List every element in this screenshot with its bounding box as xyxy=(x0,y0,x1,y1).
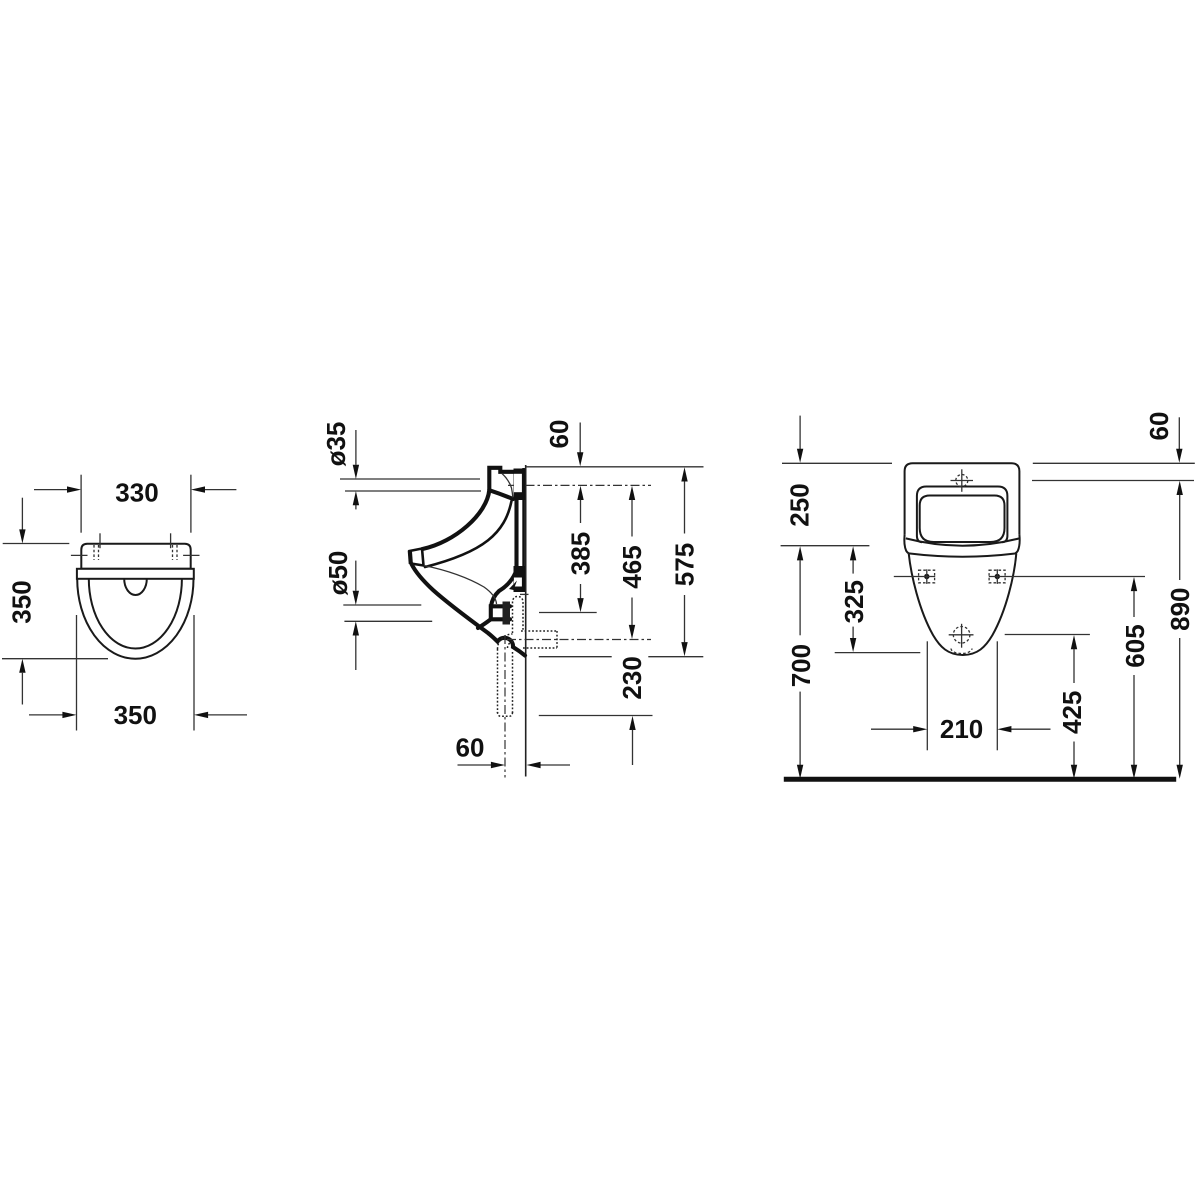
svg-text:230: 230 xyxy=(617,656,647,699)
svg-text:575: 575 xyxy=(670,543,700,586)
svg-text:ø50: ø50 xyxy=(323,551,353,596)
svg-text:60: 60 xyxy=(1144,412,1174,441)
svg-text:605: 605 xyxy=(1120,624,1150,667)
svg-text:325: 325 xyxy=(839,580,869,623)
svg-text:ø35: ø35 xyxy=(321,422,351,467)
svg-text:425: 425 xyxy=(1057,691,1087,734)
svg-text:60: 60 xyxy=(456,733,485,763)
svg-text:465: 465 xyxy=(617,545,647,588)
svg-text:700: 700 xyxy=(786,644,816,687)
svg-text:350: 350 xyxy=(114,700,157,730)
svg-text:210: 210 xyxy=(940,714,983,744)
svg-text:385: 385 xyxy=(566,532,596,575)
svg-text:60: 60 xyxy=(544,420,574,449)
svg-text:890: 890 xyxy=(1165,588,1195,631)
svg-text:330: 330 xyxy=(115,478,158,508)
svg-text:350: 350 xyxy=(7,580,37,623)
svg-text:250: 250 xyxy=(785,483,815,526)
